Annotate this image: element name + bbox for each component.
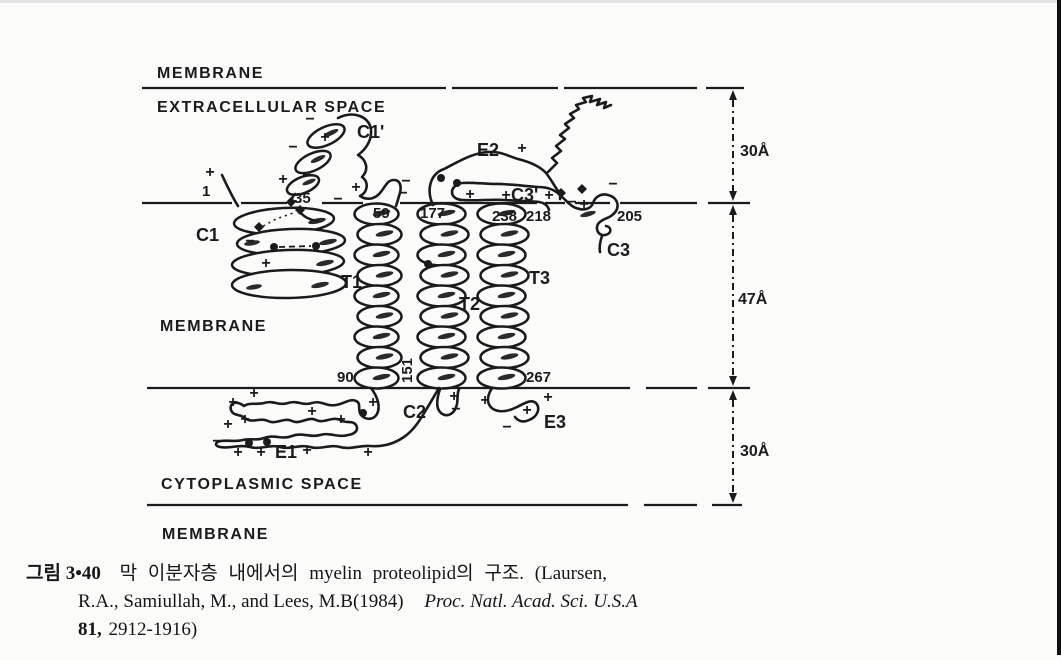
charge-symbol: − <box>398 185 407 202</box>
charge-symbol: + <box>256 444 265 461</box>
caption-volume: 81, <box>78 619 102 640</box>
charge-symbol: + <box>480 392 489 409</box>
arrowhead <box>729 90 737 100</box>
arrowhead <box>729 390 737 400</box>
figure-canvas: +−+−+−+−−−+−+++−+−−++++++++−+++++−+++− M… <box>0 0 1061 655</box>
figure-number: 그림 3•40 <box>26 563 101 584</box>
charge-symbol: − <box>288 139 297 156</box>
charge-symbol: − <box>567 194 576 211</box>
charge-symbol: + <box>302 442 311 459</box>
charge-symbol: + <box>205 164 214 181</box>
caption-citation-start: (Laursen, <box>535 563 607 584</box>
segment-label-C2: C2 <box>403 402 426 422</box>
residue-number: 90 <box>337 369 354 386</box>
charge-symbol: + <box>579 196 588 213</box>
region-labels-layer: MEMBRANEEXTRACELLULAR SPACEMEMBRANECYTOP… <box>157 65 386 543</box>
scan-artifact-top <box>0 0 1061 3</box>
arrowhead <box>729 493 737 503</box>
charge-symbol: + <box>240 411 249 428</box>
charge-symbol: + <box>261 255 270 272</box>
charge-symbol: + <box>320 129 329 146</box>
charge-symbol: + <box>363 444 372 461</box>
segment-label-C3: C3 <box>607 240 630 260</box>
c1-prime-coil <box>284 119 348 198</box>
charge-symbol: + <box>517 140 526 157</box>
charge-symbol: − <box>451 401 460 418</box>
charge-symbol: − <box>212 433 221 450</box>
segment-label-C3-prime: C3' <box>511 185 538 205</box>
caption-authors: R.A., Samiullah, M., and Lees, M.B(1984) <box>78 591 404 612</box>
arrowhead <box>729 191 737 201</box>
measurement-label: 30Å <box>740 141 770 160</box>
region-label-membrane-middle: MEMBRANE <box>160 318 267 335</box>
helix-coils-layer <box>355 204 529 389</box>
region-label-cytoplasmic-space: CYTOPLASMIC SPACE <box>161 476 363 493</box>
arrowhead <box>729 376 737 386</box>
c1-loop <box>232 269 346 299</box>
segment-label-C1-prime: C1' <box>357 122 384 142</box>
residue-number: 267 <box>526 369 551 386</box>
charge-symbol: − <box>608 176 617 193</box>
charge-symbol: + <box>336 411 345 428</box>
charge-symbol: + <box>543 389 552 406</box>
charge-symbol: + <box>522 402 531 419</box>
residue-number: 205 <box>617 208 642 225</box>
residue-diamond <box>577 184 587 194</box>
c1-helix-bundle <box>232 205 347 299</box>
residue-dot <box>437 174 445 182</box>
segment-label-E3: E3 <box>544 412 566 432</box>
caption-line-2: R.A., Samiullah, M., and Lees, M.B(1984)… <box>78 588 806 616</box>
region-label-membrane-top: MEMBRANE <box>157 65 264 82</box>
charge-symbol: + <box>351 179 360 196</box>
figure-caption: 그림 3•40 막 이분자층 내에서의 myelin proteolipid의 … <box>26 560 806 644</box>
scan-artifact-right-edge <box>1057 0 1061 655</box>
charge-symbol: + <box>465 186 474 203</box>
charge-symbol: + <box>223 416 232 433</box>
residue-number: 238 <box>492 208 517 225</box>
region-label-membrane-bottom: MEMBRANE <box>162 526 269 543</box>
segment-label-E2: E2 <box>477 140 499 160</box>
charge-symbol: + <box>544 187 553 204</box>
measurement-labels-layer: 30Å47Å30Å <box>738 141 770 460</box>
segment-label-T2: T2 <box>459 294 480 314</box>
residue-number: 35 <box>294 190 311 207</box>
residue-number: 59 <box>373 205 390 222</box>
residue-number: 1 <box>202 183 210 200</box>
residue-number: 151 <box>399 358 416 383</box>
charge-symbol: + <box>278 171 287 188</box>
segment-label-T1: T1 <box>341 272 362 292</box>
residue-dot <box>270 243 278 251</box>
residue-dot <box>359 409 367 417</box>
charge-symbol: + <box>249 385 258 402</box>
charge-symbol: + <box>307 403 316 420</box>
charge-symbol: − <box>302 167 311 184</box>
arrowhead <box>729 205 737 215</box>
caption-journal: Proc. Natl. Acad. Sci. U.S.A <box>424 591 637 612</box>
residue-dot <box>453 179 461 187</box>
residue-dot <box>312 242 320 250</box>
residue-number: 177 <box>420 205 445 222</box>
charge-symbol: + <box>233 444 242 461</box>
measurement-label: 30Å <box>740 441 770 460</box>
charge-symbol: − <box>333 191 342 208</box>
fatty-acyl-zigzag <box>548 96 611 172</box>
n-terminal-tail <box>222 175 238 206</box>
segment-label-C1: C1 <box>196 225 219 245</box>
segment-label-E1: E1 <box>275 442 297 462</box>
segment-label-T3: T3 <box>529 268 550 288</box>
measurement-label: 47Å <box>738 289 768 308</box>
caption-title: 막 이분자층 내에서의 myelin proteolipid의 구조. <box>120 563 524 584</box>
residue-number: 218 <box>526 208 551 225</box>
charge-symbol: − <box>245 233 254 250</box>
residue-dot <box>245 439 253 447</box>
charge-symbol: + <box>501 187 510 204</box>
charge-symbol: − <box>502 419 511 436</box>
caption-line-1: 그림 3•40 막 이분자층 내에서의 myelin proteolipid의 … <box>26 560 806 588</box>
charge-symbol: + <box>228 394 237 411</box>
region-label-extracellular-space: EXTRACELLULAR SPACE <box>157 99 386 116</box>
caption-pages: 2912-1916) <box>109 619 198 640</box>
residue-dot <box>424 260 432 268</box>
charge-symbol: + <box>368 394 377 411</box>
caption-line-3: 81, 2912-1916) <box>78 616 806 644</box>
